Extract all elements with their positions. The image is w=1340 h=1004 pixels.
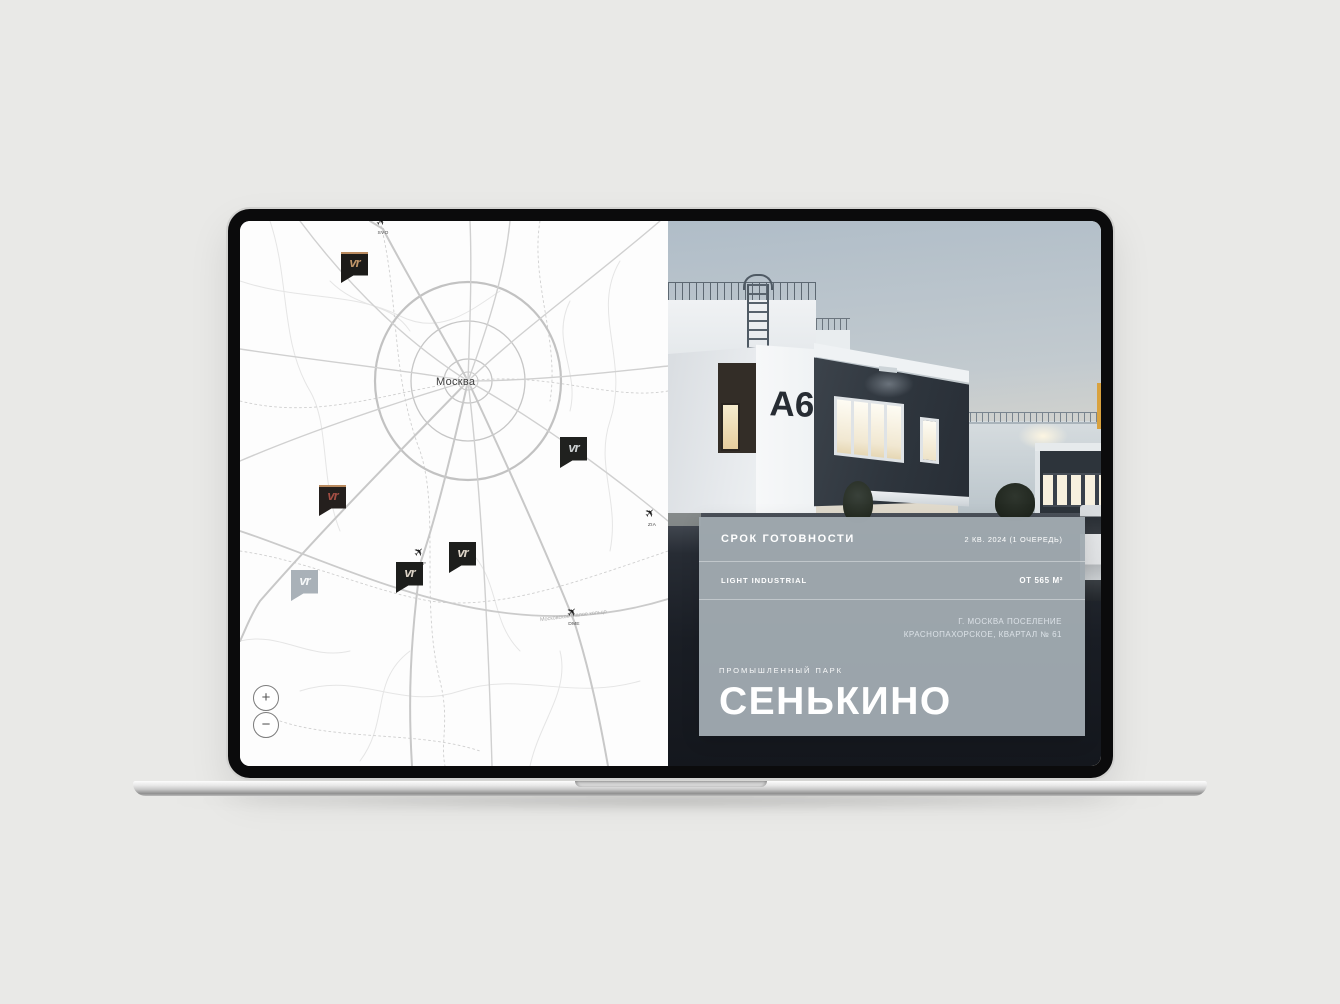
zoom-in-button[interactable]: + [253,685,279,711]
lit-window [721,403,740,451]
yellow-pole [1097,383,1101,429]
facade-lamp-glow [862,369,916,399]
area-value: ОТ 565 М² [1019,576,1063,585]
corner-column [756,342,816,523]
roof-railing [668,282,816,301]
project-info-panel: СРОК ГОТОВНОСТИ 2 КВ. 2024 (1 ОЧЕРЕДЬ) L… [699,517,1085,736]
brand-logo-icon: vr [560,441,587,454]
brand-logo-icon: vr [341,256,368,269]
map-zoom-controls: + − [253,685,281,738]
laptop-mockup: Москва Московское Малое кольцо ✈SVO✈OSF✈… [0,0,1340,1004]
address-line-2: КРАСНОПАХОРСКОЕ, КВАРТАЛ № 61 [722,628,1062,641]
map-city-label: Москва [436,376,475,388]
laptop-screen-bezel: Москва Московское Малое кольцо ✈SVO✈OSF✈… [228,209,1113,778]
brand-logo-icon: vr [291,574,318,587]
zoom-out-button[interactable]: − [253,712,279,738]
lit-windows-group [834,396,904,463]
curb [668,513,701,526]
airport-code-label: DME [568,621,580,627]
project-address: Г. МОСКВА ПОСЕЛЕНИЕ КРАСНОПАХОРСКОЕ, КВА… [699,600,1085,641]
airport-code-label: SVO [377,230,389,236]
format-label: LIGHT INDUSTRIAL [721,576,807,585]
address-line-1: Г. МОСКВА ПОСЕЛЕНИЕ [722,615,1062,628]
laptop-base-notch [575,781,767,787]
park-type-label: ПРОМЫШЛЕННЫЙ ПАРК [719,666,1048,675]
building-number-label: А6 [767,384,816,426]
park-name-title: СЕНЬКИНО [719,682,1065,721]
project-photo: А6 СРОК ГОТОВНОСТИ [668,221,1101,766]
readiness-label: СРОК ГОТОВНОСТИ [721,533,855,545]
website-viewport: Москва Московское Малое кольцо ✈SVO✈OSF✈… [240,221,1101,766]
readiness-value: 2 КВ. 2024 (1 ОЧЕРЕДЬ) [965,535,1063,543]
map-roads-graphic [240,221,668,766]
lit-windows-row [1043,473,1101,507]
brand-logo-icon: vr [396,566,423,579]
map-canvas[interactable]: Москва Московское Малое кольцо ✈SVO✈OSF✈… [240,221,668,766]
parapet [1035,443,1101,451]
tree [995,483,1035,521]
airport-code-label: ZIA [646,522,658,528]
laptop-base [133,781,1207,796]
brand-logo-icon: vr [449,546,476,559]
brand-logo-icon: vr [319,489,346,502]
lit-window-single [920,417,939,464]
